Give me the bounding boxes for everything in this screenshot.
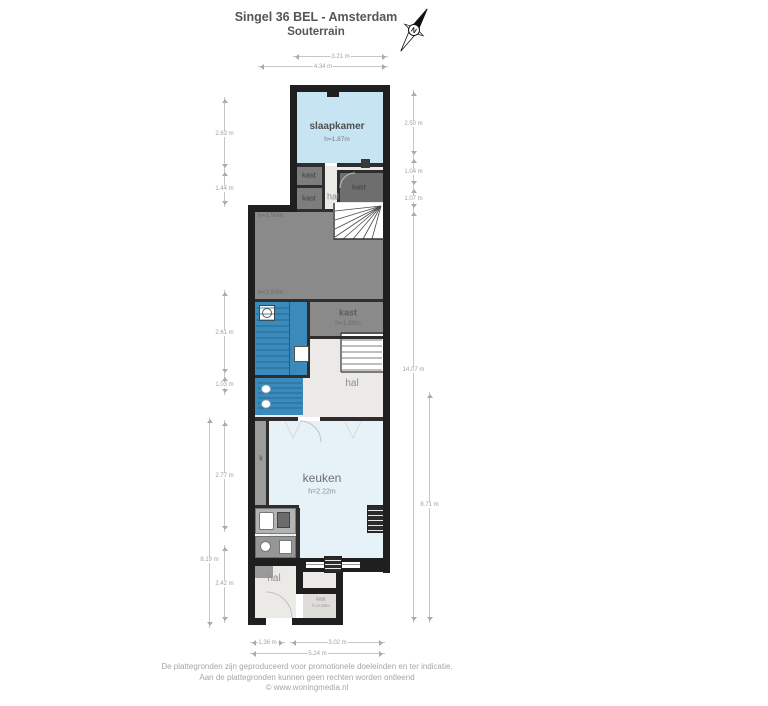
dimension-label: 1.36 m bbox=[257, 640, 277, 646]
dimension-left-5: 2.77 m bbox=[224, 420, 225, 532]
dimension-bottom-1: 1.36 m bbox=[250, 642, 285, 643]
label-closet: kast bbox=[316, 598, 325, 603]
label-hal-mid: hal bbox=[345, 379, 358, 389]
wall-top-left bbox=[290, 85, 297, 212]
dimension-label: 2.61 m bbox=[214, 330, 234, 336]
label-kast-a: kast bbox=[302, 171, 316, 179]
dimension-left-6: 2.42 m bbox=[224, 545, 225, 623]
dimension-right-3: 1.07 m bbox=[413, 187, 414, 210]
label-hal-top: hal bbox=[327, 193, 339, 202]
dimension-left-1: 2.63 m bbox=[224, 97, 225, 170]
wall-ext-right bbox=[336, 570, 343, 625]
window-sill-slaapkamer bbox=[327, 92, 339, 97]
dimension-right-far: 8.71 m bbox=[429, 392, 430, 623]
wall-kast-b-top bbox=[340, 170, 383, 173]
wall-kast-mid-bottom bbox=[310, 336, 383, 339]
label-hal-bottom: hal bbox=[267, 574, 280, 584]
dimension-top-inner: 3.21 m bbox=[293, 56, 388, 57]
dimension-label: 8.71 m bbox=[419, 502, 439, 508]
k-strip bbox=[255, 421, 266, 505]
dimension-label: 1.07 m bbox=[403, 196, 423, 202]
wall-bottom bbox=[248, 618, 343, 625]
label-kast-mid-height: h=1.80m bbox=[335, 321, 360, 328]
label-kast-b: kast bbox=[352, 183, 366, 191]
wall-top bbox=[290, 85, 390, 92]
hall-ext-floor bbox=[303, 572, 336, 588]
dimension-label: 14.07 m bbox=[402, 367, 426, 373]
dimension-label: 2.50 m bbox=[403, 121, 423, 127]
dimension-left-far: 8.19 m bbox=[209, 417, 210, 628]
wall-storage-bottom bbox=[255, 299, 383, 302]
appliance-icon bbox=[277, 512, 290, 528]
wall-hall-storage bbox=[297, 209, 333, 212]
footer-disclaimer: De plattegronden zijn geproduceerd voor … bbox=[0, 662, 614, 694]
wall-hall-top bbox=[248, 558, 300, 566]
wall-keuken-top-r bbox=[320, 417, 383, 421]
door-jamb-kast-b bbox=[361, 159, 370, 168]
dimension-label: 3.21 m bbox=[330, 54, 350, 60]
label-slaapkamer-height: h=1.87m bbox=[324, 137, 349, 144]
spiral-stairs-floor bbox=[333, 203, 383, 239]
boiler-icon bbox=[259, 305, 275, 321]
counter-box-icon bbox=[279, 540, 292, 554]
dimension-right-4: 14.07 m bbox=[413, 210, 414, 623]
sink-icon bbox=[259, 512, 274, 530]
dimension-label: 8.19 m bbox=[199, 557, 219, 563]
footer-line1: De plattegronden zijn geproduceerd voor … bbox=[0, 662, 614, 673]
dimension-label: 1.04 m bbox=[403, 169, 423, 175]
dimension-label: 1.44 m bbox=[214, 186, 234, 192]
dimension-left-4: 1.03 m bbox=[224, 375, 225, 395]
dimension-left-3: 2.61 m bbox=[224, 290, 225, 375]
entrance-door-gap bbox=[266, 618, 292, 625]
stove-icon bbox=[367, 505, 384, 533]
wall-closet-top bbox=[303, 588, 343, 594]
dimension-top-outer: 4.34 m bbox=[258, 66, 388, 67]
label-keuken: keuken bbox=[303, 472, 342, 484]
dimension-label: 4.34 m bbox=[313, 64, 333, 70]
wall-right bbox=[383, 85, 390, 573]
label-kast-c: kast bbox=[302, 194, 316, 202]
label-keuken-height: h=2.22m bbox=[308, 489, 335, 496]
wall-keuken-top-l bbox=[255, 417, 298, 421]
label-storage-height-top: h=1.50m bbox=[258, 213, 283, 220]
wall-below-slaapkamer-r bbox=[337, 163, 383, 167]
vent-icon bbox=[324, 556, 342, 573]
dimension-label: 2.77 m bbox=[214, 473, 234, 479]
floorplan-page: Singel 36 BEL - Amsterdam Souterrain bbox=[0, 0, 768, 706]
burner-icon bbox=[260, 541, 271, 552]
stair-landing-icon bbox=[294, 346, 309, 362]
plan-title-line2: Souterrain bbox=[166, 26, 466, 38]
boiler-drum-icon bbox=[262, 308, 272, 318]
wall-k-strip-bottom bbox=[255, 505, 299, 508]
plan-title: Singel 36 BEL - Amsterdam Souterrain bbox=[166, 10, 466, 38]
wall-counter-right bbox=[296, 508, 300, 558]
dimension-right-2: 1.04 m bbox=[413, 157, 414, 187]
dimension-right-1: 2.50 m bbox=[413, 90, 414, 157]
label-closet-height: h=0.60m bbox=[312, 604, 330, 609]
wall-kast-divider bbox=[297, 185, 325, 188]
wall-below-slaapkamer-l bbox=[297, 163, 325, 167]
straight-stairs-floor bbox=[341, 334, 383, 372]
dimension-label: 2.42 m bbox=[214, 581, 234, 587]
dimension-label: 1.03 m bbox=[214, 382, 234, 388]
dimension-label: 3.02 m bbox=[327, 640, 347, 646]
dimension-label: 5.24 m bbox=[307, 651, 327, 657]
wall-stairs-right bbox=[307, 302, 310, 378]
label-slaapkamer: slaapkamer bbox=[309, 122, 364, 132]
dimension-left-2: 1.44 m bbox=[224, 170, 225, 207]
label-storage-height-bottom: h=1.50m bbox=[258, 290, 283, 297]
label-kast-mid: kast bbox=[339, 309, 357, 318]
wall-k-strip-right bbox=[266, 421, 269, 505]
footer-line3: © www.woningmedia.nl bbox=[0, 683, 614, 694]
wall-step bbox=[248, 205, 297, 212]
dimension-bottom-2: 3.02 m bbox=[290, 642, 385, 643]
label-k-strip: k bbox=[259, 456, 263, 463]
dimension-label: 2.63 m bbox=[214, 131, 234, 137]
wall-stairs-lower-top bbox=[255, 375, 307, 378]
plan-title-line1: Singel 36 BEL - Amsterdam bbox=[166, 10, 466, 24]
stairs-blue-lower bbox=[255, 378, 303, 415]
dimension-bottom-3: 5.24 m bbox=[250, 653, 385, 654]
wall-kast-c-right bbox=[322, 185, 325, 212]
footer-line2: Aan de plattegronden kunnen geen rechten… bbox=[0, 673, 614, 684]
